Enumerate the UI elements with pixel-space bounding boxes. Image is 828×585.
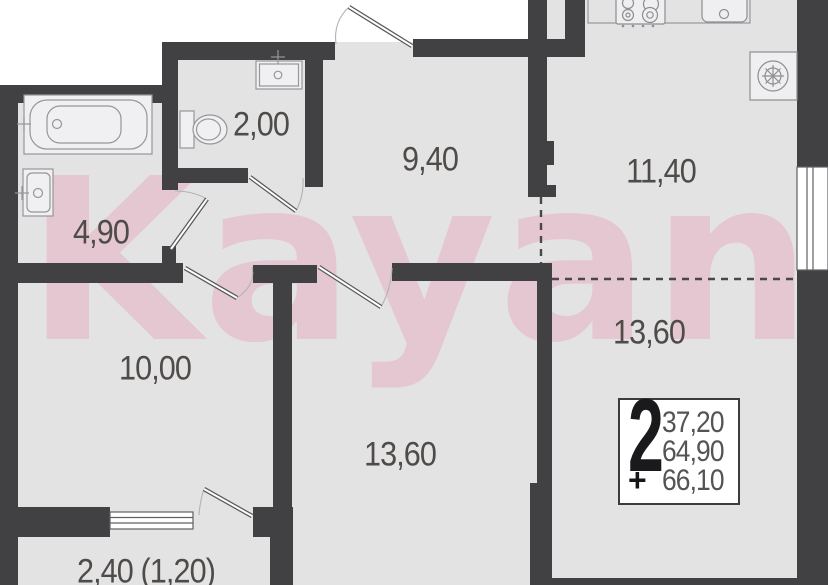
balcony-door (199, 489, 252, 516)
bathroom-door (171, 191, 207, 249)
area-main: 64,90 (662, 437, 724, 467)
window-right (797, 167, 828, 270)
bedroom-door (185, 267, 253, 298)
room-label-room2: 13,60 (364, 436, 436, 475)
room-label-bedroom: 10,00 (119, 350, 191, 389)
kitchen-sink-icon (702, 0, 747, 22)
zone-boundary-dashed (541, 197, 797, 279)
room-label-balcony: 2,40 (1,20) (77, 553, 215, 585)
plus-sign: + (628, 464, 647, 496)
area-living: 37,20 (662, 408, 724, 438)
apartment-info-box: 2 37,20 64,90 + 66,10 (618, 398, 740, 505)
wc-door (250, 177, 303, 211)
room-label-wc: 2,00 (233, 106, 289, 145)
room2-door (319, 267, 392, 307)
room-label-living: 13,60 (613, 314, 685, 353)
washbasin-icon (15, 169, 53, 216)
room-label-kitchen: 11,40 (626, 153, 696, 192)
entrance-door (336, 7, 412, 46)
floor-plan: Kayan (0, 0, 828, 585)
wc-sink-icon (256, 50, 302, 89)
area-total: 66,10 (662, 466, 724, 496)
bathtub-icon (17, 95, 152, 154)
room-label-bathroom: 4,90 (73, 214, 129, 253)
toilet-icon (180, 111, 227, 148)
stove-icon (616, 0, 665, 27)
washing-machine-icon (750, 52, 797, 100)
window-balcony (110, 512, 193, 529)
room-label-hallway: 9,40 (402, 141, 458, 180)
